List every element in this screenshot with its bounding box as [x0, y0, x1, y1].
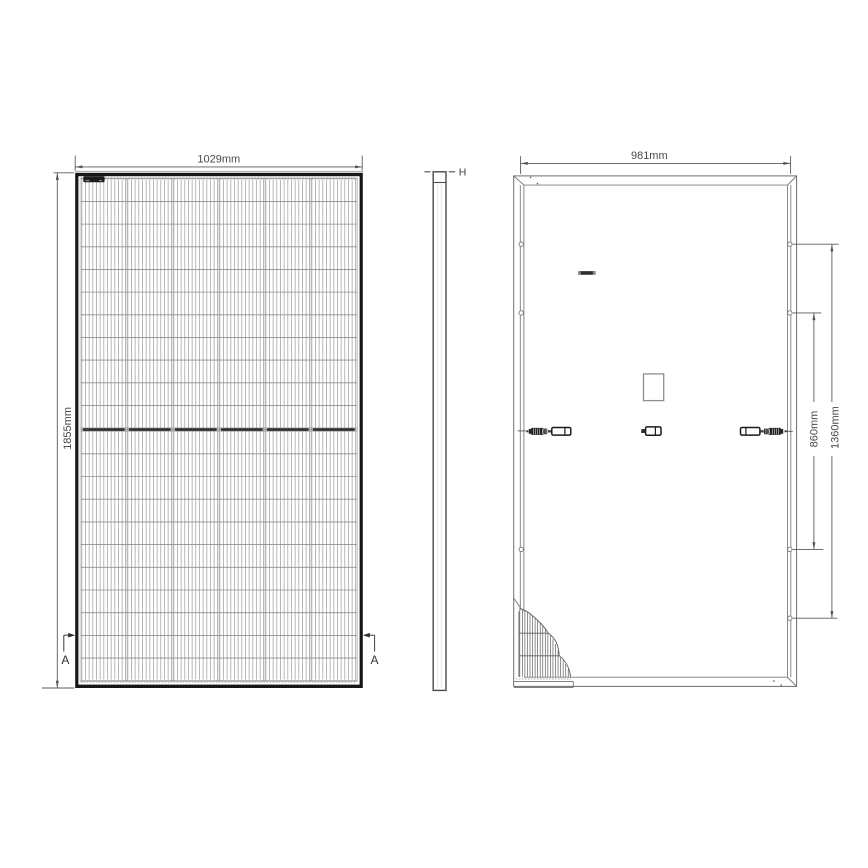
- svg-text:A: A: [370, 653, 378, 667]
- svg-text:H: H: [459, 167, 467, 179]
- svg-text:1855mm: 1855mm: [62, 407, 74, 450]
- svg-text:1029mm: 1029mm: [197, 154, 240, 166]
- svg-text:1360mm: 1360mm: [830, 406, 842, 449]
- svg-text:981mm: 981mm: [631, 150, 668, 162]
- svg-text:A: A: [61, 653, 69, 667]
- svg-text:860mm: 860mm: [809, 411, 821, 448]
